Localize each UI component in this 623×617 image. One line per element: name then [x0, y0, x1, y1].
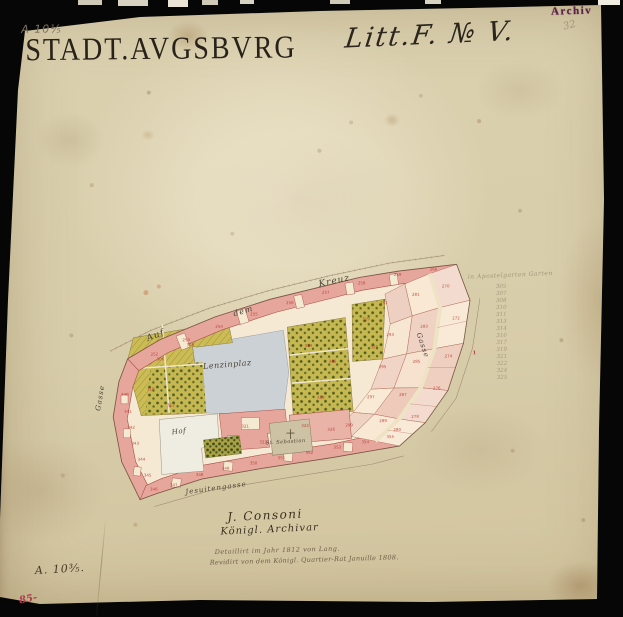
pencil-list-value: 311 — [496, 312, 507, 318]
page-title: STADT.AVGSBVRG — [25, 30, 297, 69]
pencil-list-value: 313 — [496, 319, 507, 325]
pencil-list-value: 322 — [497, 361, 508, 367]
church-building — [269, 419, 312, 455]
pencil-list-value: 319 — [497, 347, 508, 353]
pencil-list-value: 325 — [497, 375, 508, 381]
pencil-note: 32 — [562, 19, 577, 33]
pencil-list-value: 324 — [497, 368, 508, 374]
pencil-list-value: 316 — [496, 333, 507, 339]
archive-stamp: Archiv — [551, 5, 593, 18]
paper-crease — [96, 514, 107, 616]
document-content: A 10⅕ STADT.AVGSBVRG Litt.F. № V. Archiv… — [0, 0, 623, 615]
pencil-list-value: 317 — [496, 340, 507, 346]
pencil-list-value: 305 — [496, 284, 507, 290]
archivist-title: Königl. Archivar — [220, 522, 319, 537]
city-map — [90, 253, 483, 507]
pencil-list-value: 307 — [496, 291, 507, 297]
pencil-list-value: 314 — [496, 326, 507, 332]
red-crayon-reference: 85- — [18, 592, 38, 606]
archivist-signature: J. Consoni — [227, 507, 303, 524]
pencil-list-heading: in Apostelgarten Garten — [468, 270, 553, 281]
pencil-list-value: 310 — [496, 305, 507, 311]
ink-reference: A. 10⅗. — [34, 561, 85, 577]
pencil-list-value: 321 — [497, 354, 508, 360]
pencil-list-value: 308 — [496, 298, 507, 304]
litt-number: Litt.F. № V. — [343, 16, 517, 55]
survey-note-line1: Detaillirt im Jahr 1812 von Lang. — [215, 545, 341, 556]
